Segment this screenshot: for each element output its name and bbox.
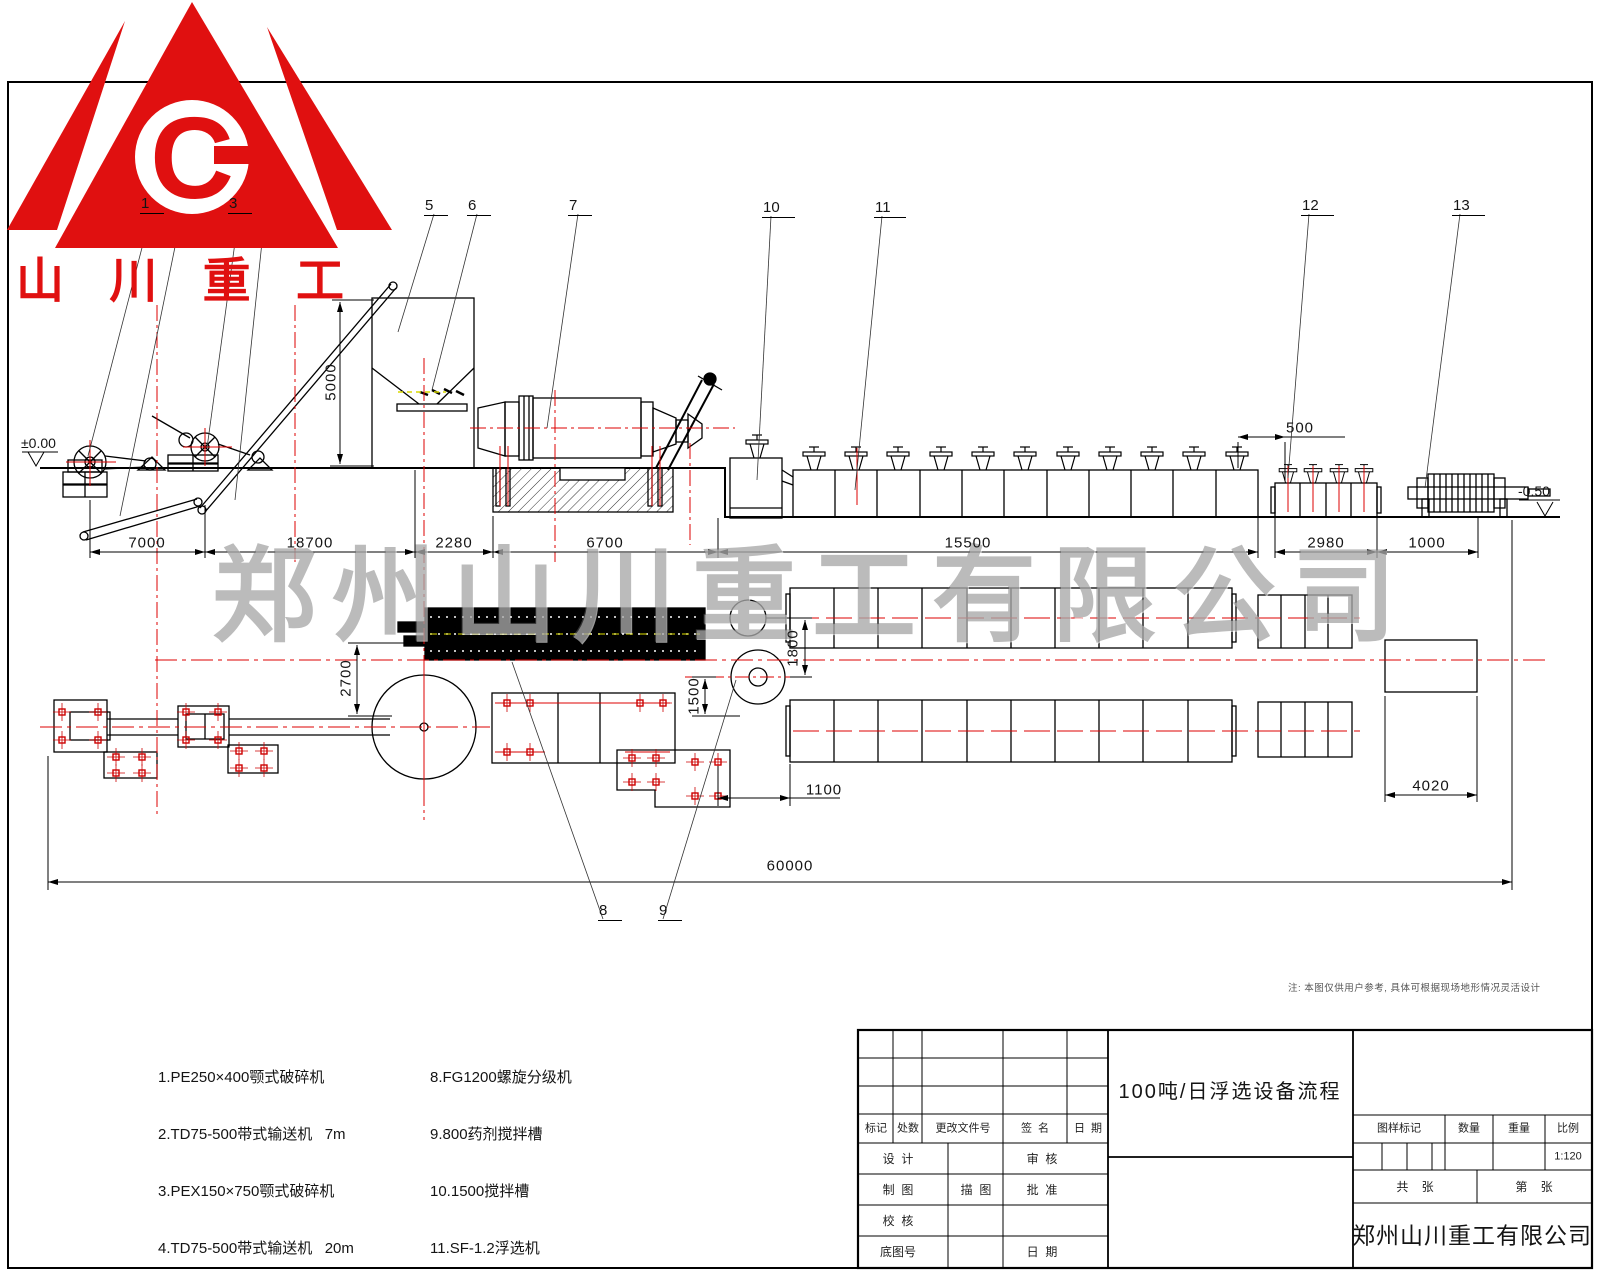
tb-rev-date: 日 期 (1074, 1124, 1102, 1135)
dim-2980: 2980 (1307, 536, 1344, 551)
jaw-crusher-1 (63, 446, 165, 497)
callout-11: 11 (874, 200, 906, 218)
dim-2700: 2700 (339, 659, 354, 696)
tb-spec-scale: 比例 (1557, 1124, 1579, 1135)
jaw-crusher-2 (152, 416, 272, 471)
dim-1000: 1000 (1408, 536, 1445, 551)
callout-9: 9 (658, 903, 682, 921)
parts-list-right: 8.FG1200螺旋分级机 9.800药剂搅拌槽 10.1500搅拌槽 11.S… (430, 1040, 628, 1280)
tb-spec-mark: 图样标记 (1377, 1124, 1421, 1135)
tb-rev-mark: 标记 (865, 1124, 887, 1135)
callout-10: 10 (762, 200, 795, 218)
tb-draft: 制 图 (883, 1184, 914, 1196)
dim-60000: 60000 (767, 859, 814, 874)
logo-monogram-tail (214, 146, 250, 164)
tb-spec-qty: 数量 (1458, 1124, 1480, 1135)
tb-base-no: 底图号 (880, 1246, 916, 1258)
spiral-classifier (656, 373, 722, 470)
dim-500: 500 (1286, 421, 1314, 436)
callout-3: 3 (228, 196, 252, 214)
drawing-sheet: C 山 川 重 工 郑州山川重工有限公司 ±0.00 -0.50 7000 18… (0, 0, 1600, 1280)
dim-7000: 7000 (128, 536, 165, 551)
dim-5000: 5000 (324, 363, 339, 400)
dim-18700: 18700 (287, 536, 334, 551)
parts-list-item: 2.TD75-500带式输送机 7m (158, 1127, 354, 1154)
dim-6700: 6700 (586, 536, 623, 551)
tb-rev-file: 更改文件号 (936, 1124, 991, 1135)
callout-13: 13 (1452, 198, 1485, 216)
logo-name-text: 山 川 重 工 (16, 258, 354, 306)
dim-1100: 1100 (806, 783, 842, 798)
tb-sheet-total: 共 张 (1396, 1181, 1433, 1193)
dim-1500: 1500 (687, 677, 702, 714)
level-mark-zero: ±0.00 (21, 436, 56, 450)
parts-list-item: 3.PEX150×750颚式破碎机 (158, 1184, 354, 1211)
callout-5: 5 (424, 198, 448, 216)
dim-15500: 15500 (945, 536, 992, 551)
flotation-row-sf12 (793, 447, 1258, 517)
callout-7: 7 (568, 198, 592, 216)
parts-list-item: 4.TD75-500带式输送机 20m (158, 1241, 354, 1268)
tb-proof: 校 核 (883, 1215, 914, 1227)
parts-list-left: 1.PE250×400颚式破碎机 2.TD75-500带式输送机 7m 3.PE… (158, 1040, 354, 1280)
tb-approve: 批 准 (1027, 1184, 1058, 1196)
callout-12: 12 (1301, 198, 1334, 216)
parts-list-item: 10.1500搅拌槽 (430, 1184, 628, 1211)
watermark-text: 郑州山川重工有限公司 (212, 545, 1412, 649)
callout-1: 1 (140, 196, 164, 214)
tb-design: 设 计 (883, 1153, 914, 1165)
parts-list-item: 1.PE250×400颚式破碎机 (158, 1070, 354, 1097)
tb-date: 日 期 (1027, 1246, 1058, 1258)
dim-2280: 2280 (435, 536, 472, 551)
drawing-note: 注: 本图仅供用户参考, 具体可根据现场地形情况灵活设计 (1288, 984, 1541, 994)
tb-rev-count: 处数 (897, 1124, 919, 1135)
tb-scale-value: 1:120 (1554, 1152, 1582, 1163)
tb-trace: 描 图 (961, 1184, 992, 1196)
dim-4020: 4020 (1412, 779, 1449, 794)
tb-check: 审 核 (1027, 1153, 1058, 1165)
dim-1800: 1800 (786, 629, 801, 666)
parts-list-item: 9.800药剂搅拌槽 (430, 1127, 628, 1154)
parts-list-item: 8.FG1200螺旋分级机 (430, 1070, 628, 1097)
tb-sheet-no: 第 张 (1515, 1181, 1552, 1193)
parts-list-item: 11.SF-1.2浮选机 (430, 1241, 628, 1268)
tb-spec-weight: 重量 (1508, 1124, 1530, 1135)
tb-company: 郑州山川重工有限公司 (1352, 1225, 1592, 1248)
drawing-title: 100吨/日浮选设备流程 (1119, 1082, 1342, 1102)
tb-rev-sign: 签 名 (1021, 1124, 1049, 1135)
callout-6: 6 (467, 198, 491, 216)
callout-8: 8 (598, 903, 622, 921)
agitation-tank-1500 (730, 435, 793, 518)
level-mark-minus050: -0.50 (1518, 484, 1550, 498)
mill-foundation (493, 468, 673, 512)
